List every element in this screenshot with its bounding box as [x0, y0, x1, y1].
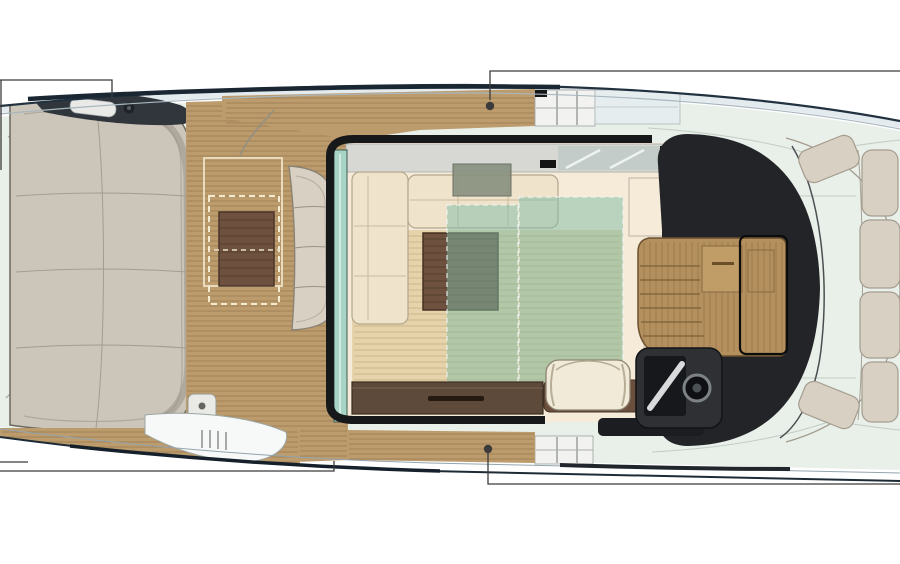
- floor-plan-page: [0, 0, 900, 564]
- callout-bottom-center-dot: [484, 445, 492, 453]
- callout-top-center-dot: [486, 102, 494, 110]
- galley-handle-icon: [712, 262, 734, 265]
- stbd-teak: [348, 430, 535, 463]
- salon-wall-unit: [453, 164, 511, 196]
- galley-stairs: [638, 236, 787, 356]
- yacht-deck-plan: [0, 0, 900, 564]
- sunroof-glass: [558, 146, 662, 170]
- locker-cap-icon: [199, 403, 206, 410]
- bow-cushion-3: [860, 292, 900, 358]
- sunpad-cushion: [10, 100, 193, 431]
- bow-cushion-2: [860, 220, 900, 288]
- bow-cushion-4: [862, 362, 898, 422]
- sunroof-latch-icon: [540, 160, 556, 168]
- dinette-table: [219, 212, 274, 286]
- bow-cushion-1: [862, 150, 898, 216]
- steering-wheel-hub: [693, 384, 702, 393]
- carpet-overlay-b: [519, 197, 623, 382]
- aft-sunpad: [10, 92, 193, 466]
- fairlead-top-hub: [127, 106, 131, 110]
- galley-counter-block: [702, 246, 742, 292]
- sideboard-handle-icon: [428, 396, 484, 401]
- salon-sofa-aft: [352, 172, 408, 324]
- carpet-overlay-a: [447, 205, 518, 382]
